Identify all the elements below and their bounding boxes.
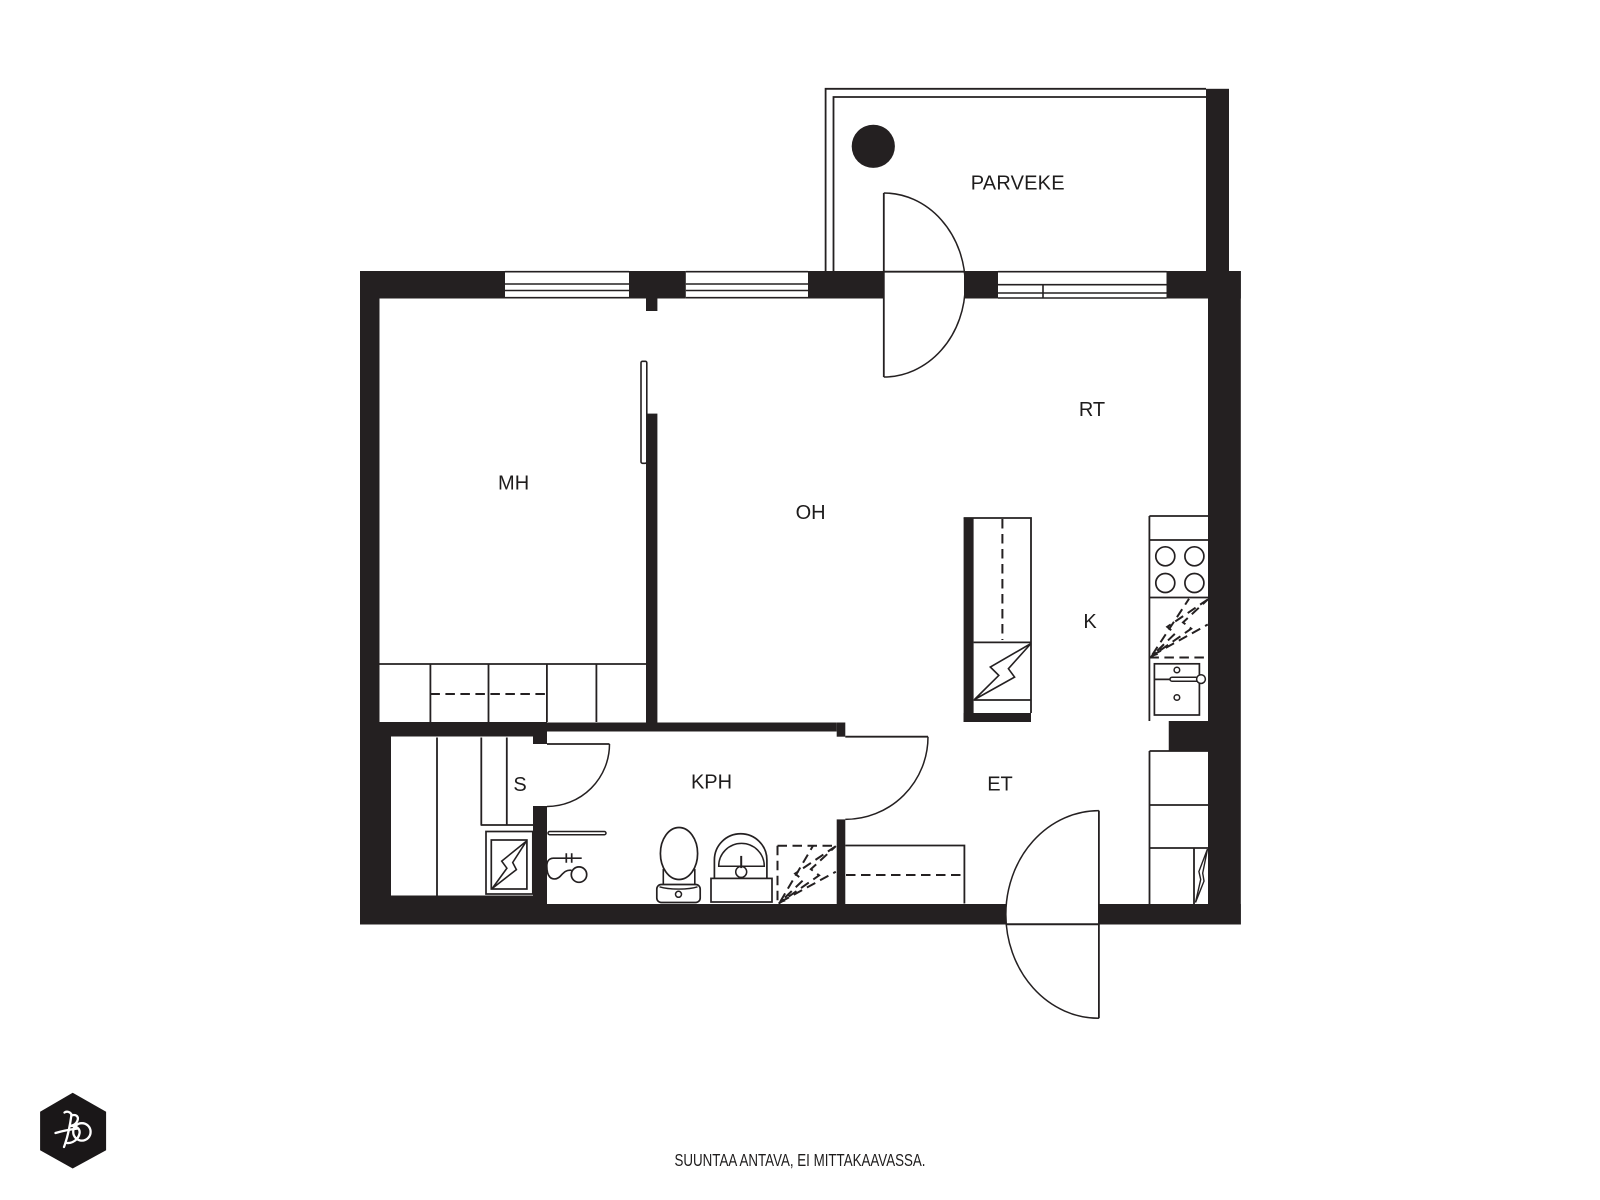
svg-text:OH: OH [796, 502, 826, 524]
svg-text:SUUNTAA ANTAVA, EI MITTAKAAVAS: SUUNTAA ANTAVA, EI MITTAKAAVASSA. [675, 1150, 926, 1170]
svg-text:KPH: KPH [691, 772, 732, 794]
svg-text:ET: ET [987, 774, 1013, 796]
svg-text:K: K [1083, 611, 1097, 633]
svg-text:PARVEKE: PARVEKE [971, 173, 1065, 195]
svg-text:S: S [513, 774, 526, 796]
svg-text:RT: RT [1079, 399, 1105, 421]
svg-text:MH: MH [498, 473, 529, 495]
